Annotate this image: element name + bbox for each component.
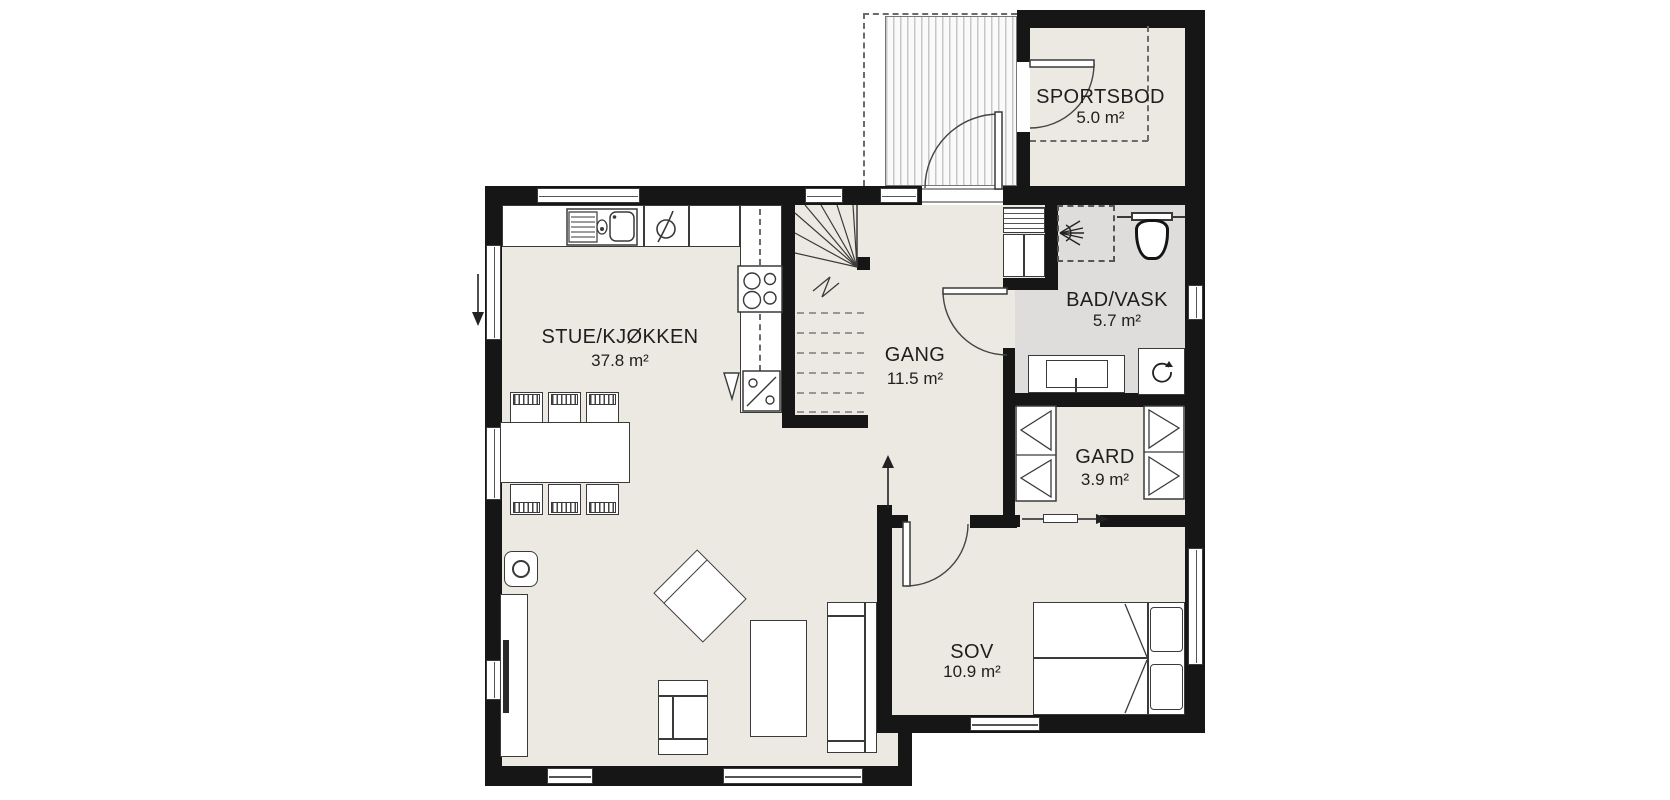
sofa	[827, 602, 877, 753]
kitchen-counter-divider-2	[688, 205, 690, 247]
wall-gard-left	[1003, 348, 1015, 527]
dining-chair	[586, 484, 619, 515]
gard-sliding-panel	[1043, 514, 1078, 523]
armchair-small-arm-top	[658, 695, 708, 697]
window-left-middle	[486, 427, 501, 500]
room-area-stue: 37.8 m²	[490, 351, 750, 371]
vanity-faucet	[1075, 378, 1077, 393]
room-label-sov: SOV	[912, 641, 1032, 664]
room-area-sportsbod: 5.0 m²	[1018, 108, 1183, 128]
room-area-gang: 11.5 m²	[855, 369, 975, 389]
dining-table	[500, 422, 630, 483]
chair-back-hatch	[589, 394, 616, 405]
armchair-small-arm-bottom	[658, 738, 708, 740]
chair-back-hatch	[589, 502, 616, 513]
room-label-bad: BAD/VASK	[1037, 289, 1197, 312]
corner-cabinet-icon	[718, 369, 784, 413]
dining-chair	[510, 484, 543, 515]
dining-chair	[510, 392, 543, 423]
roof-overhang-dashed-top	[863, 13, 1017, 15]
tv-icon	[503, 640, 509, 713]
wall-sportsbod-top	[1017, 10, 1205, 28]
vent-grille-icon	[1003, 207, 1045, 233]
window-gang-top	[880, 188, 918, 203]
window-stair-top	[805, 188, 843, 203]
room-label-gard: GARD	[1045, 446, 1165, 469]
room-area-bad: 5.7 m²	[1037, 311, 1197, 331]
sofa-arm-bottom	[827, 740, 865, 742]
chair-back-hatch	[551, 502, 578, 513]
kitchen-sink-icon	[565, 206, 639, 246]
bed-pillow-bottom	[1150, 664, 1183, 710]
window-bedroom-right	[1188, 548, 1203, 665]
dining-chair	[548, 392, 581, 423]
toilet-icon	[1135, 219, 1169, 260]
room-label-sportsbod: SPORTSBOD	[1018, 86, 1183, 109]
entrance-sill-line-inner	[922, 201, 1003, 203]
bed-fold-lines	[1118, 600, 1150, 717]
floor-plan: STUE/KJØKKEN 37.8 m² GANG 11.5 m² BAD/VA…	[0, 0, 1670, 800]
roof-overhang-dashed-left	[863, 13, 865, 186]
chair-back-hatch	[551, 394, 578, 405]
chair-back-hatch	[513, 502, 540, 513]
window-bottom-large	[723, 768, 863, 784]
room-label-gang: GANG	[855, 344, 975, 367]
exterior-arrow-down	[468, 272, 488, 330]
washing-machine-icon	[1150, 360, 1174, 384]
wood-stove-circle	[512, 560, 530, 578]
room-area-sov: 10.9 m²	[912, 662, 1032, 682]
chair-back-hatch	[513, 394, 540, 405]
window-kitchen-top	[537, 188, 640, 203]
sportsbod-dashed-horizontal	[1030, 140, 1148, 142]
wall-step-connector	[898, 733, 912, 778]
stove-symbol-icon	[643, 207, 688, 245]
sofa-back-line	[864, 602, 866, 753]
wall-bedroom-left	[877, 505, 892, 715]
dining-chair	[586, 392, 619, 423]
bedroom-door-arc	[900, 518, 975, 590]
window-left-lower	[486, 660, 501, 700]
armchair-small	[658, 680, 708, 755]
coffee-table	[750, 620, 807, 737]
window-bedroom-bottom	[970, 717, 1040, 731]
kitchen-cabinet-dashed-lower	[759, 314, 761, 371]
room-label-stue: STUE/KJØKKEN	[490, 326, 750, 349]
sofa-arm-top	[827, 615, 865, 617]
room-area-gard: 3.9 m²	[1045, 470, 1165, 490]
shower-icon	[1056, 216, 1086, 250]
cooktop-icon	[737, 265, 783, 313]
dining-chair	[548, 484, 581, 515]
armchair-small-back	[672, 695, 674, 738]
vanity-sink-basin	[1046, 360, 1108, 388]
window-bottom-small	[547, 768, 593, 784]
hall-cabinet-divider	[1023, 234, 1025, 277]
wall-bottom-bedroom	[877, 715, 1205, 733]
bed-pillow-top	[1150, 607, 1183, 652]
passage-arrow-up	[878, 452, 898, 510]
entrance-door-arc	[920, 108, 1005, 190]
kitchen-cabinet-dashed-upper	[759, 209, 761, 265]
